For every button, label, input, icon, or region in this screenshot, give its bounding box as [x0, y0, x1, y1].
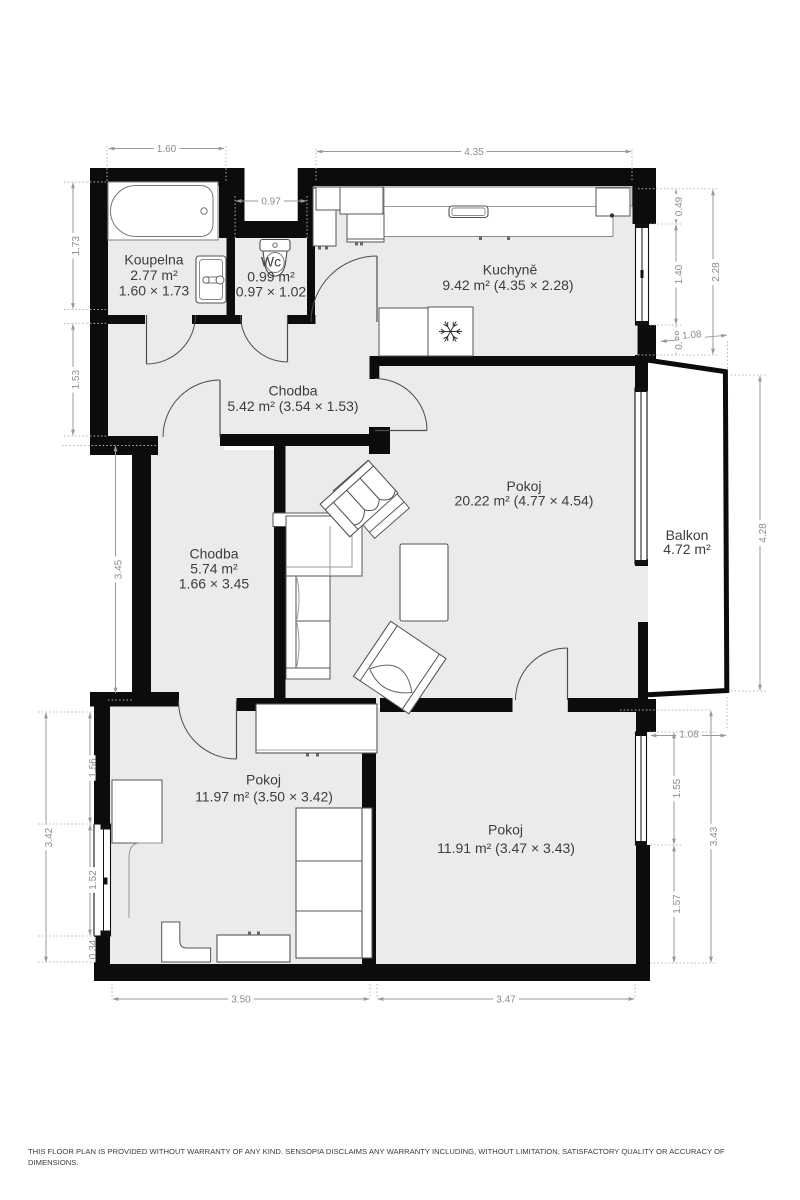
svg-text:Kuchyně: Kuchyně: [483, 262, 538, 278]
svg-text:Chodba: Chodba: [189, 546, 238, 562]
svg-text:4.28: 4.28: [758, 523, 769, 543]
svg-text:1.55: 1.55: [672, 778, 683, 798]
svg-text:4.72 m²: 4.72 m²: [663, 541, 711, 557]
svg-text:1.53: 1.53: [71, 370, 82, 390]
svg-text:20.22 m² (4.77 × 4.54): 20.22 m² (4.77 × 4.54): [455, 493, 594, 509]
svg-text:THIS FLOOR PLAN IS PROVIDED WI: THIS FLOOR PLAN IS PROVIDED WITHOUT WARR…: [28, 1147, 725, 1156]
svg-text:1.66 × 3.45: 1.66 × 3.45: [179, 576, 250, 592]
svg-text:1.57: 1.57: [672, 894, 683, 914]
svg-text:0.97 × 1.02: 0.97 × 1.02: [236, 284, 307, 300]
svg-text:3.45: 3.45: [114, 559, 125, 579]
svg-text:2.28: 2.28: [711, 262, 722, 282]
svg-text:Pokoj: Pokoj: [488, 822, 523, 838]
svg-text:0.99 m²: 0.99 m²: [247, 269, 295, 285]
svg-text:1.40: 1.40: [674, 264, 685, 284]
svg-text:1.08: 1.08: [682, 329, 703, 342]
svg-text:0.34: 0.34: [88, 939, 99, 959]
svg-text:1.52: 1.52: [88, 870, 99, 890]
svg-text:Pokoj: Pokoj: [246, 772, 281, 788]
svg-text:3.47: 3.47: [496, 995, 516, 1006]
svg-text:Chodba: Chodba: [268, 383, 317, 399]
svg-text:11.91 m² (3.47 × 3.43): 11.91 m² (3.47 × 3.43): [437, 840, 575, 856]
svg-text:1.08: 1.08: [679, 730, 699, 741]
svg-text:1.56: 1.56: [88, 758, 99, 778]
svg-text:11.97 m² (3.50 × 3.42): 11.97 m² (3.50 × 3.42): [195, 789, 333, 805]
svg-text:3.42: 3.42: [44, 827, 55, 847]
svg-text:1.60: 1.60: [157, 144, 177, 155]
svg-text:0.49: 0.49: [674, 196, 685, 216]
svg-text:Koupelna: Koupelna: [124, 252, 183, 268]
svg-text:2.77 m²: 2.77 m²: [130, 267, 178, 283]
svg-text:3.50: 3.50: [231, 995, 251, 1006]
svg-text:5.42 m² (3.54 × 1.53): 5.42 m² (3.54 × 1.53): [227, 398, 358, 414]
svg-text:DIMENSIONS.: DIMENSIONS.: [28, 1158, 79, 1167]
svg-text:1.60 × 1.73: 1.60 × 1.73: [119, 283, 190, 299]
svg-text:4.35: 4.35: [464, 147, 484, 158]
svg-text:Wc: Wc: [261, 254, 281, 270]
svg-text:9.42 m² (4.35 × 2.28): 9.42 m² (4.35 × 2.28): [442, 277, 573, 293]
svg-text:3.43: 3.43: [709, 826, 720, 846]
svg-text:0.97: 0.97: [261, 197, 281, 208]
svg-text:5.74 m²: 5.74 m²: [190, 561, 238, 577]
svg-text:1.73: 1.73: [71, 236, 82, 256]
